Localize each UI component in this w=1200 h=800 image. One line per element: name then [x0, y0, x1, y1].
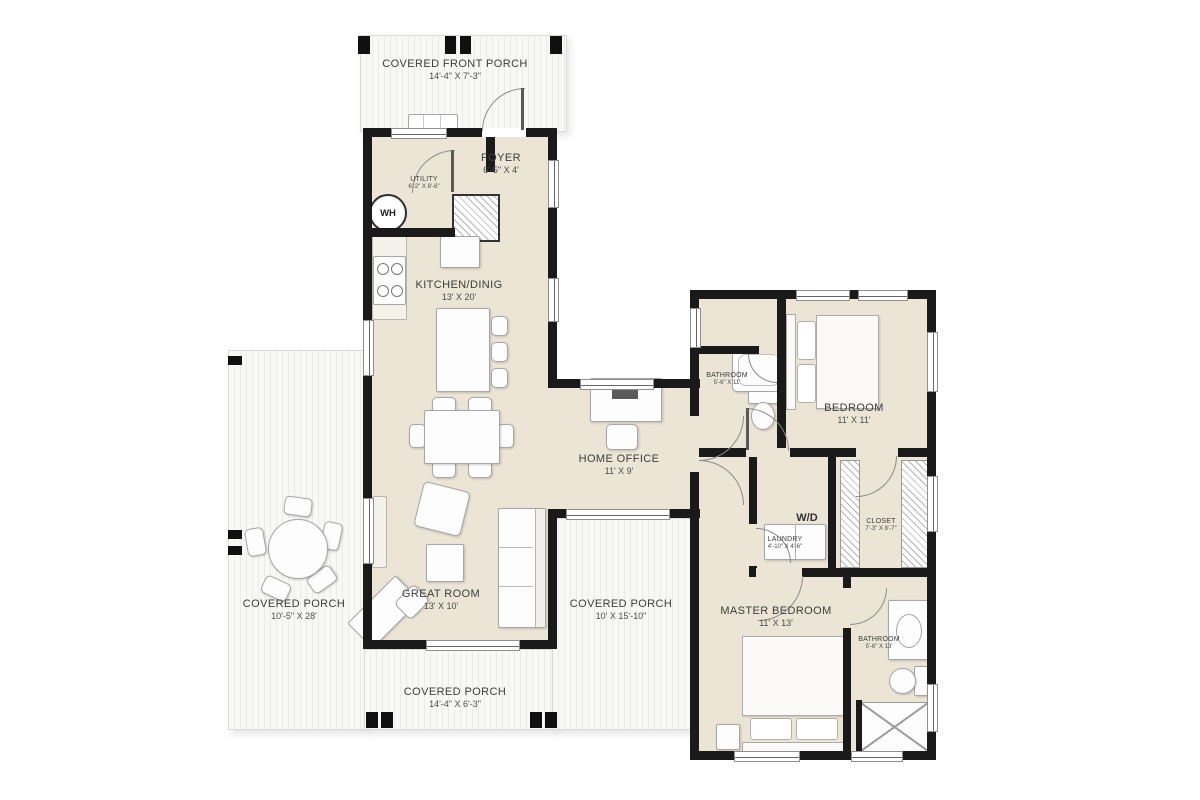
tv-console: [372, 496, 387, 568]
sofa: [498, 508, 546, 628]
room-dims: 11' X 11': [824, 415, 884, 425]
porch-post: [550, 36, 562, 54]
room-label-utility: UTILITY 6'-2" X 8'-6": [408, 176, 439, 190]
window: [363, 320, 374, 376]
room-label-home-office: HOME OFFICE 11' X 9': [579, 453, 660, 476]
window: [566, 509, 670, 520]
porch-post: [445, 36, 456, 54]
window: [580, 379, 654, 390]
washer-dryer-label: W/D: [796, 512, 817, 524]
pillow: [796, 718, 838, 740]
room-label-front-porch: COVERED FRONT PORCH 14'-4" X 7'-3": [382, 58, 528, 81]
toilet: [914, 666, 928, 696]
window: [796, 290, 850, 301]
room-label-closet: CLOSET 7'-3" X 8'-7": [865, 518, 896, 532]
sofa-cushion: [499, 547, 533, 548]
door-leaf: [521, 88, 524, 130]
room-dims: 13' X 20': [415, 292, 502, 302]
room-dims: 6'-5" X 4': [481, 165, 521, 175]
window: [363, 498, 374, 564]
room-name: COVERED PORCH: [243, 598, 345, 610]
patio-chair: [283, 495, 313, 518]
door-leaf: [451, 150, 454, 192]
deck-middle-porch: [552, 518, 702, 730]
room-dims: 14'-4" X 7'-3": [382, 71, 528, 81]
room-dims: 14'-4" X 6'-3": [404, 699, 506, 709]
window: [927, 684, 938, 732]
room-dims: 10' X 15'-10": [570, 611, 672, 621]
room-dims: 5'-6" X 13': [858, 644, 900, 650]
stove-burner: [391, 285, 403, 297]
kitchen-island: [436, 308, 490, 392]
door-opening: [759, 346, 777, 354]
room-name: FOYER: [481, 152, 521, 164]
closet-rod: [901, 460, 928, 568]
porch-post: [228, 356, 242, 365]
room-label-porch-bottom: COVERED PORCH 14'-4" X 6'-3": [404, 686, 506, 709]
porch-post: [530, 712, 542, 728]
room-name: BATHROOM: [858, 636, 900, 643]
patio-table: [268, 519, 328, 579]
room-name: BEDROOM: [824, 402, 884, 414]
porch-post: [358, 36, 370, 54]
floor-plan: WH: [0, 0, 1200, 800]
porch-post: [381, 712, 393, 728]
porch-post: [228, 546, 242, 555]
room-dims: 7'-3" X 8'-7": [865, 526, 896, 532]
pillow: [797, 321, 816, 360]
wall-segment: [699, 448, 936, 457]
room-dims: 10'-5" X 28': [243, 611, 345, 621]
bed: [786, 314, 878, 408]
room-name: COVERED PORCH: [404, 686, 506, 698]
pillow: [750, 718, 792, 740]
room-label-porch-mid: COVERED PORCH 10' X 15'-10": [570, 598, 672, 621]
shower: [860, 702, 929, 752]
door-leaf: [746, 408, 749, 450]
room-dims: 11' X 13': [720, 618, 831, 628]
room-label-foyer: FOYER 6'-5" X 4': [481, 152, 521, 175]
master-bed: [742, 636, 844, 750]
window: [734, 751, 800, 762]
room-dims: 6'-2" X 8'-6": [408, 184, 439, 190]
room-name: COVERED PORCH: [570, 598, 672, 610]
room-name: MASTER BEDROOM: [720, 605, 831, 617]
sink-basin: [896, 614, 922, 648]
bar-stool: [491, 342, 508, 362]
toilet-bowl: [889, 668, 916, 694]
room-label-kitchen: KITCHEN/DINIG 13' X 20': [415, 279, 502, 302]
bed-headboard: [786, 314, 796, 410]
wall-segment: [548, 509, 557, 649]
room-name: COVERED FRONT PORCH: [382, 58, 528, 70]
room-name: BATHROOM: [706, 372, 748, 379]
wall-segment: [690, 290, 699, 760]
room-dims: 11' X 9': [579, 466, 660, 476]
wall-segment: [363, 228, 455, 237]
stove-burner: [391, 263, 403, 275]
window: [548, 160, 559, 208]
room-name: UTILITY: [408, 176, 439, 183]
nightstand: [716, 724, 740, 750]
window: [851, 751, 903, 762]
dining-table: [424, 410, 500, 464]
wall-segment: [363, 128, 372, 649]
bed-blanket: [742, 636, 844, 716]
kitchen-cabinet: [440, 236, 480, 268]
room-label-bathroom-2: BATHROOM 5'-6" X 13': [858, 636, 900, 650]
room-label-bathroom-1: BATHROOM 5'-6" X 11': [706, 372, 748, 386]
sofa-cushion: [499, 586, 533, 587]
bar-stool: [491, 368, 508, 388]
room-label-master-bedroom: MASTER BEDROOM 11' X 13': [720, 605, 831, 628]
foyer-shelf-closet: [452, 194, 500, 242]
bed-blanket: [816, 315, 879, 409]
stove-burner: [377, 285, 389, 297]
coffee-table: [426, 544, 464, 582]
window: [690, 308, 701, 348]
room-label-porch-left: COVERED PORCH 10'-5" X 28': [243, 598, 345, 621]
room-label-great-room: GREAT ROOM 13' X 10': [402, 588, 480, 611]
water-heater: WH: [369, 194, 407, 232]
pillow: [797, 364, 816, 403]
porch-post: [228, 530, 242, 539]
bar-stool: [491, 316, 508, 336]
washer-dryer-text: W/D: [796, 512, 817, 524]
room-name: GREAT ROOM: [402, 588, 480, 600]
stove-burner: [377, 263, 389, 275]
wall-segment: [856, 700, 862, 752]
room-dims: 13' X 10': [402, 601, 480, 611]
wall-segment: [828, 456, 836, 577]
porch-post: [545, 712, 557, 728]
window: [858, 290, 908, 301]
room-dims: 4'-10" X 4'-6": [768, 544, 803, 550]
room-dims: 5'-6" X 11': [706, 380, 748, 386]
window: [548, 278, 559, 322]
room-label-laundry: LAUNDRY 4'-10" X 4'-6": [768, 536, 803, 550]
room-name: LAUNDRY: [768, 536, 803, 543]
stove-icon: [373, 256, 406, 305]
water-heater-label: WH: [380, 208, 396, 219]
window: [927, 476, 938, 532]
sofa-back: [535, 509, 545, 627]
room-name: KITCHEN/DINIG: [415, 279, 502, 291]
porch-post: [460, 36, 471, 54]
window: [391, 128, 447, 139]
door-opening: [690, 416, 699, 472]
window: [927, 332, 938, 392]
office-chair: [606, 424, 638, 450]
porch-post: [366, 712, 378, 728]
room-label-bedroom: BEDROOM 11' X 11': [824, 402, 884, 425]
vanity-sink: [888, 600, 929, 660]
wall-segment: [699, 346, 759, 354]
sliding-door: [426, 640, 520, 651]
room-name: CLOSET: [865, 518, 896, 525]
room-name: HOME OFFICE: [579, 453, 660, 465]
